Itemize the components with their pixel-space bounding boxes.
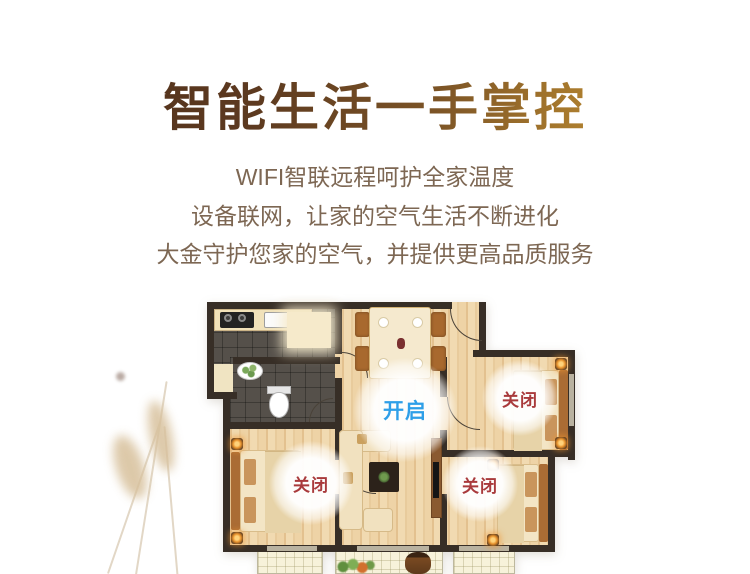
plate (378, 317, 389, 328)
tv (433, 462, 439, 498)
page-title: 智能生活一手掌控 (0, 80, 750, 136)
promo-banner: 智能生活一手掌控 WIFI智联远程呵护全家温度 设备联网，让家的空气生活不断进化… (0, 0, 750, 574)
status-label-off: 关闭 (293, 471, 329, 496)
bed-pillow (525, 507, 537, 532)
grass-bud (116, 372, 125, 381)
bed-headboard (539, 464, 548, 542)
bed-pillow (525, 472, 537, 497)
bed-pillow (244, 497, 256, 523)
wall (207, 302, 214, 399)
bed-pillow (244, 459, 256, 485)
window (569, 374, 574, 426)
stove-burner (238, 314, 246, 322)
status-bubble-bedroom-top-right: 关闭 (482, 360, 558, 436)
wall (223, 422, 340, 429)
bed-headboard (231, 452, 240, 530)
grass-stem (134, 381, 167, 574)
toilet (269, 392, 289, 418)
grass-decoration (0, 330, 240, 574)
bedside-lamp (555, 358, 567, 370)
subtitle-block: WIFI智联远程呵护全家温度 设备联网，让家的空气生活不断进化 大金守护您家的空… (0, 158, 750, 274)
grass-plume (106, 431, 153, 502)
coffee-table (369, 462, 399, 492)
balcony-vase (405, 552, 431, 574)
balcony-door (459, 546, 509, 551)
plate (412, 317, 423, 328)
wall (335, 378, 342, 424)
balcony-plants (335, 558, 375, 574)
wall (223, 392, 230, 552)
bathroom-basin (237, 362, 263, 380)
table-centerpiece (397, 338, 405, 349)
grass-stem (107, 422, 161, 574)
subtitle-line-3: 大金守护您家的空气，并提供更高品质服务 (0, 235, 750, 274)
status-label-off: 关闭 (502, 386, 538, 411)
kitchen-light (287, 312, 331, 348)
sofa-chaise (363, 508, 393, 532)
status-bubble-bedroom-bottom-right: 关闭 (442, 446, 518, 522)
subtitle-line-2: 设备联网，让家的空气生活不断进化 (0, 197, 750, 236)
status-label-off: 关闭 (462, 472, 498, 497)
status-label-on: 开启 (383, 395, 427, 425)
status-bubble-bedroom-left: 关闭 (269, 441, 353, 525)
bedside-lamp (231, 532, 243, 544)
bedside-lamp (555, 437, 567, 449)
grass-stem (163, 426, 178, 574)
wall (548, 457, 555, 552)
wall (473, 350, 575, 357)
subtitle-line-1: WIFI智联远程呵护全家温度 (0, 158, 750, 197)
bedside-lamp (487, 534, 499, 546)
floorplan-illustration: 开启 关闭 关闭 关闭 (207, 302, 582, 574)
status-bubble-living: 开启 (353, 358, 457, 462)
wall (207, 392, 237, 399)
grass-plume (143, 398, 179, 473)
balcony-door (357, 546, 429, 551)
wall (335, 302, 342, 354)
bedside-lamp (231, 438, 243, 450)
balcony-door (267, 546, 317, 551)
dining-chair (355, 312, 370, 337)
stove-burner (224, 314, 232, 322)
dining-chair (431, 312, 446, 337)
dining-chair (355, 346, 370, 371)
